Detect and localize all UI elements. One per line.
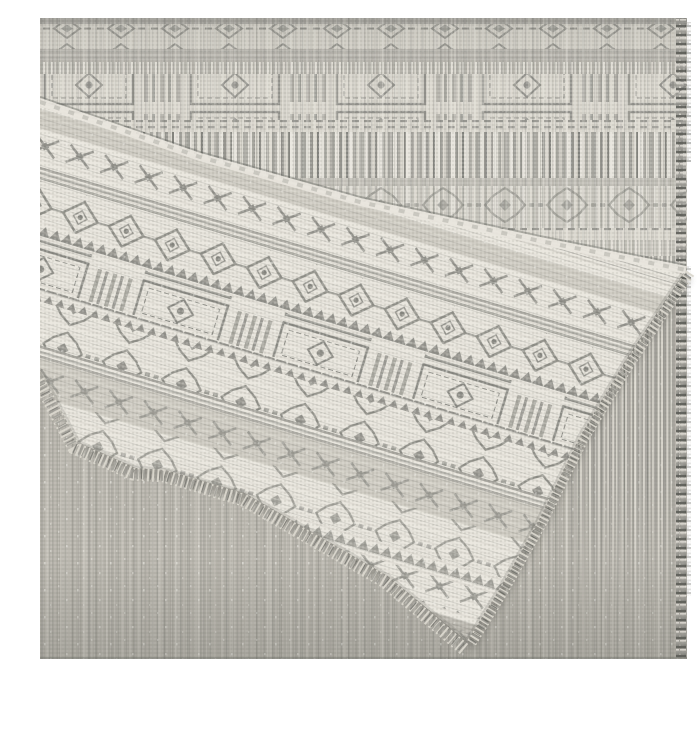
rug-serged-edge-right bbox=[676, 18, 686, 658]
rug-bottom-shading bbox=[40, 556, 687, 659]
rug-product-photo bbox=[40, 16, 700, 716]
rug-edge-fringe-wisps bbox=[685, 22, 691, 596]
rug-bottom-edge bbox=[40, 657, 687, 659]
rug-top-shading bbox=[40, 18, 687, 88]
rug-photo-svg bbox=[40, 16, 700, 716]
